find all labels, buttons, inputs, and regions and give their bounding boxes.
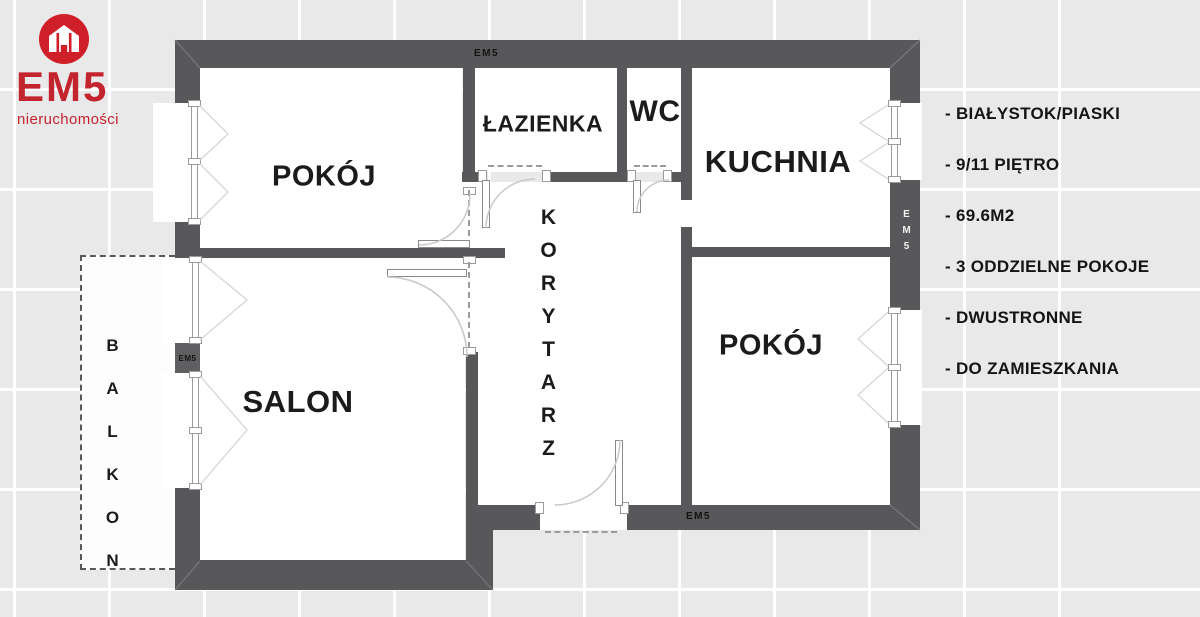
opening-entry-door: [540, 505, 627, 530]
door-dash-entry: [545, 531, 617, 533]
window-cap: [888, 307, 901, 314]
wall-kuchnia-bottom: [686, 247, 890, 257]
wall-label-right: EM5: [901, 209, 911, 257]
wall-right-lower: [890, 425, 920, 530]
window-frame-balcony-1: [192, 259, 199, 343]
door-leaf-lazienka: [482, 180, 490, 228]
floorplan-canvas: EM5 nieruchomości EM5: [0, 0, 1200, 617]
label-salon: SALON: [243, 384, 354, 420]
wall-left-upper: [175, 68, 200, 103]
label-balkon: BALKON: [104, 336, 121, 594]
window-cap: [888, 421, 901, 428]
jamb: [663, 170, 672, 182]
wall-salon-step: [466, 505, 493, 560]
label-kuchnia: KUCHNIA: [705, 144, 851, 180]
detail-location: - BIAŁYSTOK/PIASKI: [945, 88, 1149, 139]
wall-korytarz-pokoj: [681, 227, 692, 505]
wall-salon-korytarz: [466, 352, 478, 505]
property-details-list: - BIAŁYSTOK/PIASKI - 9/11 PIĘTRO - 69.6M…: [945, 88, 1149, 394]
window-cap: [188, 158, 201, 165]
wall-bottom-left-of-entry: [493, 505, 540, 530]
room-korytarz: [475, 182, 681, 505]
opening-kuchnia-passage: [681, 200, 692, 227]
label-korytarz: KORYTARZ: [538, 206, 559, 470]
door-dash-lazienka: [488, 165, 542, 167]
jamb: [542, 170, 551, 182]
detail-exposure: - DWUSTRONNE: [945, 292, 1149, 343]
door-leaf-pokoj: [418, 240, 470, 248]
detail-condition: - DO ZAMIESZKANIA: [945, 343, 1149, 394]
wall-bottom-right-of-entry: [627, 505, 890, 530]
balcony-area: [80, 255, 175, 570]
jamb: [535, 502, 544, 514]
jamb: [463, 347, 476, 355]
wall-pokoj-salon-divider: [175, 248, 505, 258]
door-dash-pokoj: [468, 190, 470, 246]
door-dash-salon: [468, 262, 470, 348]
door-leaf-entry: [615, 440, 623, 506]
brand-subtitle: nieruchomości: [17, 112, 119, 127]
wall-right-upper: [890, 68, 920, 103]
window-cap: [888, 176, 901, 183]
window-cap: [189, 256, 202, 263]
wall-salon-bottom: [175, 560, 493, 590]
window-cap: [188, 218, 201, 225]
wall-left-em5-block: EM5: [175, 343, 200, 373]
window-cap: [888, 138, 901, 145]
window-cap: [189, 371, 202, 378]
window-cap: [189, 483, 202, 490]
wall-wc-left: [617, 68, 627, 182]
brand-name: EM5: [16, 66, 108, 108]
door-leaf-wc: [633, 180, 641, 213]
house-icon: [47, 24, 81, 54]
wall-top: [175, 40, 920, 68]
door-leaf-salon: [387, 269, 467, 277]
wall-label-bottom: EM5: [686, 511, 711, 522]
window-cap: [888, 364, 901, 371]
label-lazienka: ŁAZIENKA: [483, 111, 603, 138]
window-cap: [189, 337, 202, 344]
window-cap: [188, 100, 201, 107]
room-pokoj-right: [692, 257, 890, 505]
label-wc: WC: [630, 95, 681, 129]
window-cap: [888, 100, 901, 107]
room-pokoj-top: [200, 68, 462, 248]
wall-label-top: EM5: [474, 48, 499, 59]
window-cap: [189, 427, 202, 434]
label-pokoj-top: POKÓJ: [272, 161, 376, 194]
detail-rooms: - 3 ODDZIELNE POKOJE: [945, 241, 1149, 292]
detail-area: - 69.6M2: [945, 190, 1149, 241]
detail-floor: - 9/11 PIĘTRO: [945, 139, 1149, 190]
wall-pokoj-lazienka: [463, 68, 475, 182]
wall-wc-kuchnia: [681, 68, 692, 200]
door-dash-wc: [634, 165, 666, 167]
brand-logo-badge: [39, 14, 89, 64]
label-pokoj-right: POKÓJ: [719, 330, 823, 363]
